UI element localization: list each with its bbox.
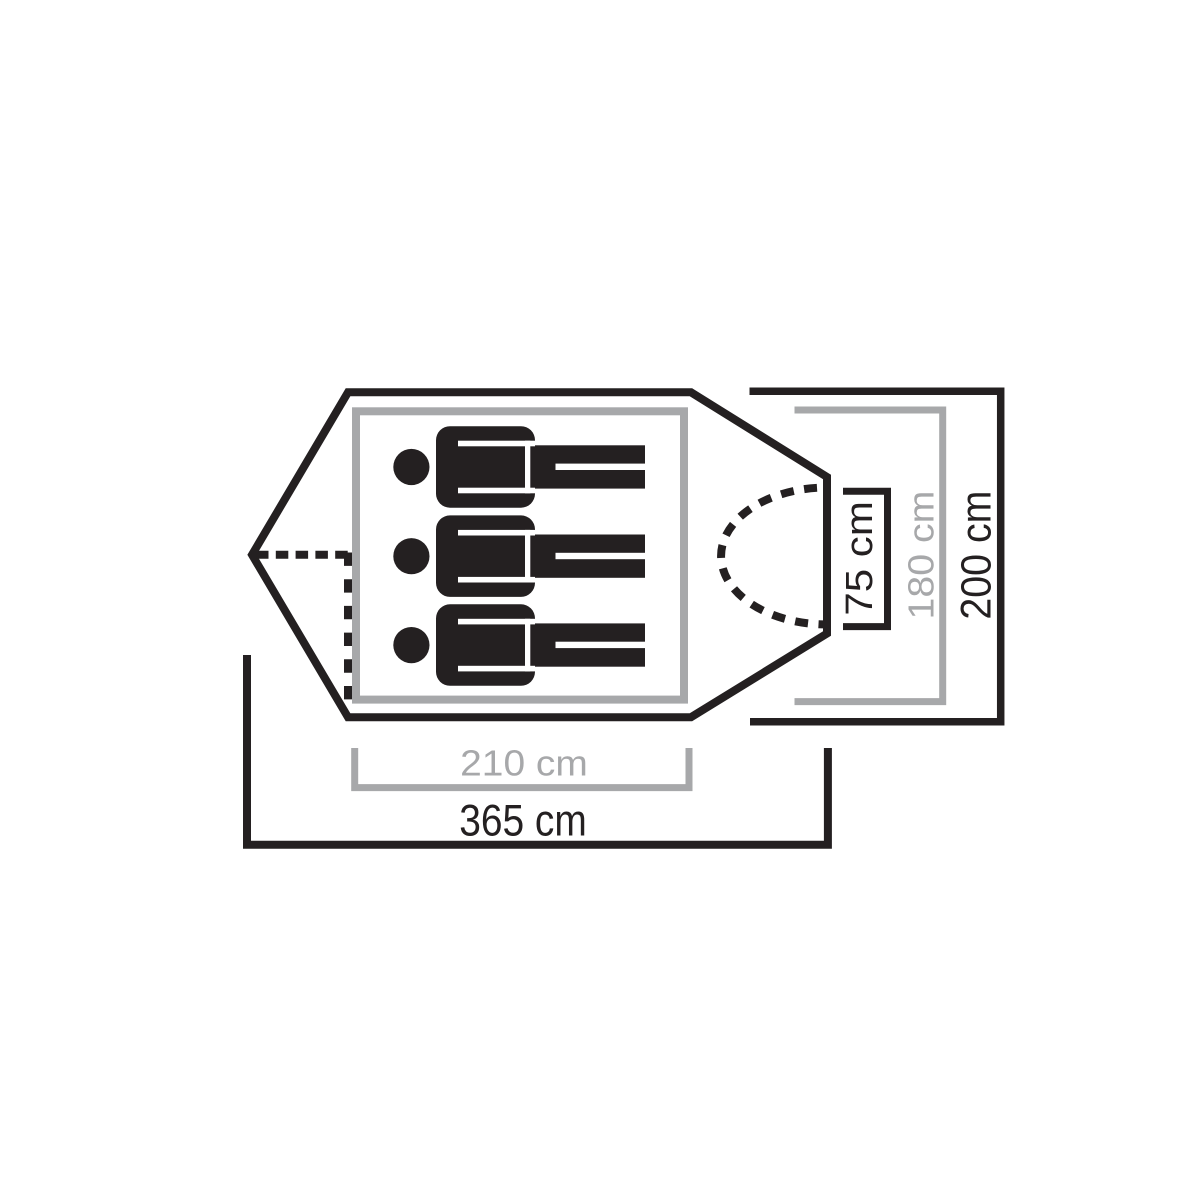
svg-text:210 cm: 210 cm: [460, 742, 588, 783]
svg-text:180 cm: 180 cm: [901, 491, 942, 620]
svg-text:200 cm: 200 cm: [954, 491, 1001, 620]
svg-text:75 cm: 75 cm: [839, 501, 881, 616]
svg-text:365 cm: 365 cm: [459, 797, 587, 846]
